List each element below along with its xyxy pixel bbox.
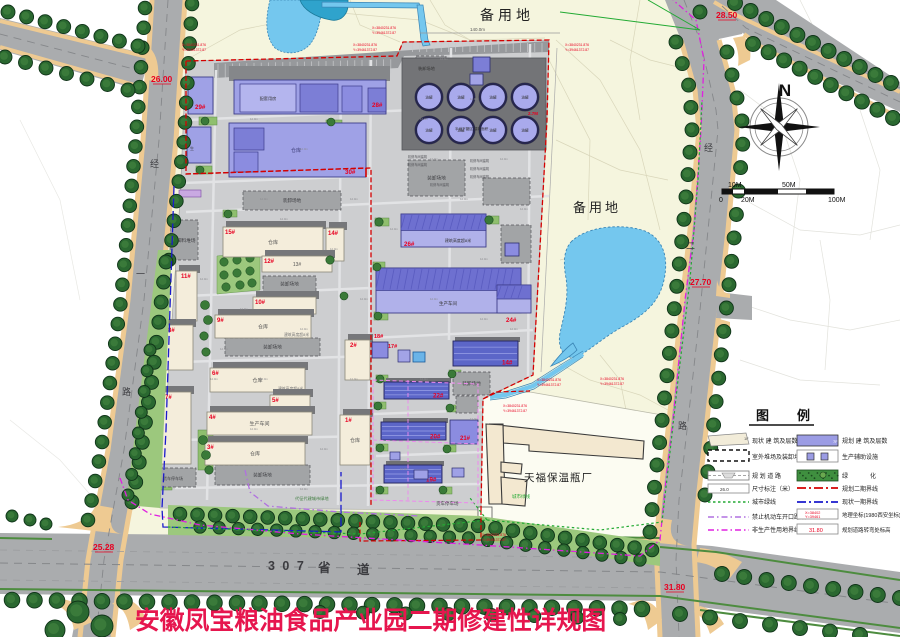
- svg-text:12.0m: 12.0m: [520, 207, 528, 211]
- svg-text:X=3840231.876: X=3840231.876: [537, 378, 561, 382]
- svg-text:X=3840231.876: X=3840231.876: [353, 43, 377, 47]
- svg-text:Y=39461372.87: Y=39461372.87: [353, 48, 377, 52]
- svg-text:3#: 3#: [207, 445, 214, 451]
- svg-text:一: 一: [136, 269, 145, 279]
- svg-text:配套用房: 配套用房: [260, 95, 277, 102]
- svg-text:26.0: 26.0: [720, 487, 729, 492]
- svg-text:Y=39461372.87: Y=39461372.87: [565, 48, 589, 52]
- svg-text:生产辅助设施: 生产辅助设施: [842, 453, 878, 461]
- svg-text:建筑高度超8米: 建筑高度超8米: [445, 237, 471, 243]
- svg-text:9#: 9#: [217, 318, 224, 324]
- svg-text:备用地: 备用地: [480, 7, 534, 23]
- svg-text:X=3840231.876: X=3840231.876: [182, 43, 206, 47]
- svg-text:12.0m: 12.0m: [300, 487, 308, 491]
- svg-text:21#: 21#: [460, 436, 471, 442]
- svg-text:城市绿线: 城市绿线: [752, 498, 776, 506]
- svg-text:5#: 5#: [272, 398, 279, 404]
- svg-text:规 划 道 路: 规 划 道 路: [752, 472, 781, 480]
- svg-text:12.0m: 12.0m: [390, 227, 398, 231]
- svg-text:12.0m: 12.0m: [350, 377, 358, 381]
- svg-text:12.0m: 12.0m: [360, 297, 368, 301]
- svg-text:规划 建 筑及层数: 规划 建 筑及层数: [842, 437, 887, 445]
- svg-text:12.0m: 12.0m: [280, 217, 288, 221]
- svg-text:机修车间建筑: 机修车间建筑: [470, 174, 490, 179]
- svg-text:13#: 13#: [293, 262, 302, 268]
- svg-text:油罐: 油罐: [457, 95, 465, 100]
- svg-text:省: 省: [317, 560, 331, 575]
- svg-text:0: 0: [719, 197, 723, 204]
- svg-text:1F: 1F: [744, 436, 749, 441]
- svg-text:20M: 20M: [741, 197, 755, 204]
- svg-text:12#: 12#: [264, 259, 275, 265]
- svg-text:仓库: 仓库: [268, 239, 278, 246]
- svg-text:装卸场地: 装卸场地: [253, 472, 272, 479]
- svg-text:X=3840231.876: X=3840231.876: [565, 43, 589, 47]
- svg-text:规划道路转弯处标高: 规划道路转弯处标高: [842, 526, 891, 534]
- svg-text:X=3840231.876: X=3840231.876: [503, 404, 527, 408]
- svg-text:22#: 22#: [433, 393, 444, 400]
- svg-text:12.0m: 12.0m: [500, 157, 508, 161]
- svg-text:17#: 17#: [388, 344, 397, 350]
- svg-text:12.0m: 12.0m: [220, 347, 228, 351]
- svg-text:12.0m: 12.0m: [350, 197, 358, 201]
- svg-text:20#: 20#: [430, 434, 441, 441]
- svg-text:14#: 14#: [502, 360, 513, 367]
- svg-text:地理坐标(1980西安坐标): 地理坐标(1980西安坐标): [842, 511, 900, 519]
- svg-text:12.0m: 12.0m: [260, 197, 268, 201]
- svg-text:现状一期界线: 现状一期界线: [842, 498, 878, 506]
- svg-text:Y=39461372.87: Y=39461372.87: [482, 538, 506, 542]
- svg-text:12.0m: 12.0m: [510, 327, 518, 331]
- svg-text:10M: 10M: [728, 182, 742, 189]
- svg-text:经: 经: [150, 158, 159, 169]
- svg-text:12.0m: 12.0m: [470, 97, 478, 101]
- svg-text:2.7M: 2.7M: [528, 111, 538, 116]
- svg-text:1#: 1#: [345, 418, 352, 424]
- svg-text:Y=39461372.87: Y=39461372.87: [503, 409, 527, 413]
- svg-text:12.0m: 12.0m: [480, 317, 488, 321]
- svg-text:28.50: 28.50: [716, 10, 738, 20]
- svg-text:半地下罐区 建筑面积: 半地下罐区 建筑面积: [455, 126, 489, 131]
- svg-text:例: 例: [797, 408, 810, 423]
- svg-text:50M: 50M: [782, 182, 796, 189]
- svg-text:规划二期界线: 规划二期界线: [842, 485, 878, 493]
- svg-text:建筑高度超8米: 建筑高度超8米: [284, 332, 309, 337]
- svg-text:12.0m: 12.0m: [480, 257, 488, 261]
- svg-text:路: 路: [122, 386, 131, 397]
- svg-text:3 0 7: 3 0 7: [268, 559, 306, 573]
- svg-text:Y=39461372.87: Y=39461372.87: [372, 31, 396, 35]
- svg-text:2#: 2#: [350, 343, 357, 349]
- svg-text:X=3840231.876: X=3840231.876: [600, 377, 624, 381]
- svg-text:12.0m: 12.0m: [420, 117, 428, 121]
- svg-text:12.0m: 12.0m: [330, 247, 338, 251]
- svg-text:油罐: 油罐: [425, 128, 433, 133]
- svg-text:城市绿线: 城市绿线: [512, 493, 530, 500]
- svg-text:15#: 15#: [225, 230, 236, 236]
- svg-text:12.0m: 12.0m: [430, 157, 438, 161]
- svg-text:X=3840231.876: X=3840231.876: [372, 26, 396, 30]
- svg-text:机修车间建筑: 机修车间建筑: [430, 182, 450, 187]
- svg-text:货车停车场: 货车停车场: [163, 475, 183, 481]
- svg-text:27.70: 27.70: [690, 277, 712, 287]
- svg-text:油罐: 油罐: [425, 95, 433, 100]
- svg-text:绿: 绿: [842, 472, 848, 480]
- svg-text:二: 二: [686, 241, 695, 251]
- svg-text:7F: 7F: [833, 439, 838, 444]
- svg-text:12.0m: 12.0m: [460, 197, 468, 201]
- svg-text:12.0m: 12.0m: [300, 147, 308, 151]
- svg-text:现状 建 筑及层数: 现状 建 筑及层数: [752, 437, 797, 445]
- svg-text:仓库: 仓库: [250, 451, 260, 458]
- svg-text:X=3840231.876: X=3840231.876: [482, 533, 506, 537]
- svg-text:机修车间建筑: 机修车间建筑: [470, 158, 490, 163]
- svg-text:18#: 18#: [374, 334, 383, 340]
- svg-text:油罐: 油罐: [521, 95, 529, 100]
- svg-text:图: 图: [756, 408, 769, 423]
- svg-text:30#: 30#: [345, 169, 356, 176]
- svg-text:12.0m: 12.0m: [250, 117, 258, 121]
- svg-text:备用地: 备用地: [573, 200, 621, 215]
- svg-text:机修车间建筑: 机修车间建筑: [408, 162, 428, 167]
- svg-text:12.0m: 12.0m: [260, 377, 268, 381]
- svg-text:12.0m: 12.0m: [240, 307, 248, 311]
- svg-text:12.0m: 12.0m: [420, 377, 428, 381]
- svg-text:12.0m: 12.0m: [210, 377, 218, 381]
- svg-text:装卸场地: 装卸场地: [283, 197, 302, 204]
- svg-text:12.0m: 12.0m: [400, 467, 408, 471]
- svg-text:化: 化: [870, 472, 876, 480]
- svg-text:25.28: 25.28: [93, 542, 115, 552]
- svg-text:生: 生: [190, 145, 194, 151]
- svg-text:油罐: 油罐: [521, 128, 529, 133]
- svg-text:12.0m: 12.0m: [440, 57, 448, 61]
- svg-text:Y=39461372.87: Y=39461372.87: [182, 48, 206, 52]
- svg-text:机修车间建筑: 机修车间建筑: [408, 154, 428, 159]
- svg-text:Y=39461372.87: Y=39461372.87: [537, 383, 561, 387]
- svg-text:7#: 7#: [165, 395, 172, 401]
- svg-text:生产车间: 生产车间: [439, 300, 457, 307]
- svg-text:12.0m: 12.0m: [300, 327, 308, 331]
- svg-text:装卸场地: 装卸场地: [418, 65, 436, 72]
- svg-text:代征代建城市绿地: 代征代建城市绿地: [295, 495, 329, 502]
- svg-text:N: N: [779, 81, 791, 100]
- svg-text:28#: 28#: [372, 102, 383, 109]
- svg-text:12.0m: 12.0m: [320, 447, 328, 451]
- svg-text:12.0m: 12.0m: [430, 297, 438, 301]
- svg-text:装卸场地: 装卸场地: [280, 281, 299, 288]
- svg-text:31.80: 31.80: [664, 582, 686, 592]
- svg-text:尺寸标注（米）: 尺寸标注（米）: [752, 485, 794, 493]
- svg-text:100M: 100M: [828, 197, 846, 204]
- svg-text:道: 道: [357, 562, 370, 577]
- svg-text:经: 经: [704, 142, 713, 153]
- svg-text:26#: 26#: [404, 241, 415, 248]
- svg-text:机修车间建筑: 机修车间建筑: [470, 166, 490, 171]
- svg-text:10#: 10#: [255, 300, 266, 306]
- svg-text:油罐: 油罐: [489, 95, 497, 100]
- svg-text:140.0m: 140.0m: [470, 27, 485, 32]
- svg-text:24#: 24#: [506, 317, 517, 324]
- svg-text:安徽凤宝粮油食品产业园二期修建性详规图: 安徽凤宝粮油食品产业园二期修建性详规图: [135, 606, 606, 635]
- svg-text:29#: 29#: [195, 104, 206, 111]
- svg-text:26.00: 26.00: [151, 74, 173, 84]
- svg-text:仓库: 仓库: [258, 324, 268, 331]
- svg-text:天福保温瓶厂: 天福保温瓶厂: [524, 471, 593, 484]
- svg-text:Y=39461: Y=39461: [805, 515, 820, 519]
- svg-text:货车停车场: 货车停车场: [436, 500, 459, 507]
- svg-text:非生产性用地界线: 非生产性用地界线: [752, 526, 800, 534]
- svg-text:油罐: 油罐: [489, 128, 497, 133]
- svg-text:装卸场地: 装卸场地: [427, 175, 446, 182]
- svg-text:4#: 4#: [209, 415, 216, 421]
- svg-text:11#: 11#: [181, 274, 191, 280]
- svg-text:12.0m: 12.0m: [200, 277, 208, 281]
- svg-text:Y=39461372.87: Y=39461372.87: [600, 382, 624, 386]
- svg-text:路: 路: [678, 420, 687, 431]
- svg-text:仓库: 仓库: [350, 437, 360, 444]
- svg-text:14#: 14#: [328, 231, 339, 237]
- svg-text:装卸场地: 装卸场地: [263, 344, 282, 351]
- svg-text:31.80: 31.80: [809, 528, 823, 534]
- svg-text:12.0m: 12.0m: [470, 417, 478, 421]
- svg-text:12.0m: 12.0m: [250, 427, 258, 431]
